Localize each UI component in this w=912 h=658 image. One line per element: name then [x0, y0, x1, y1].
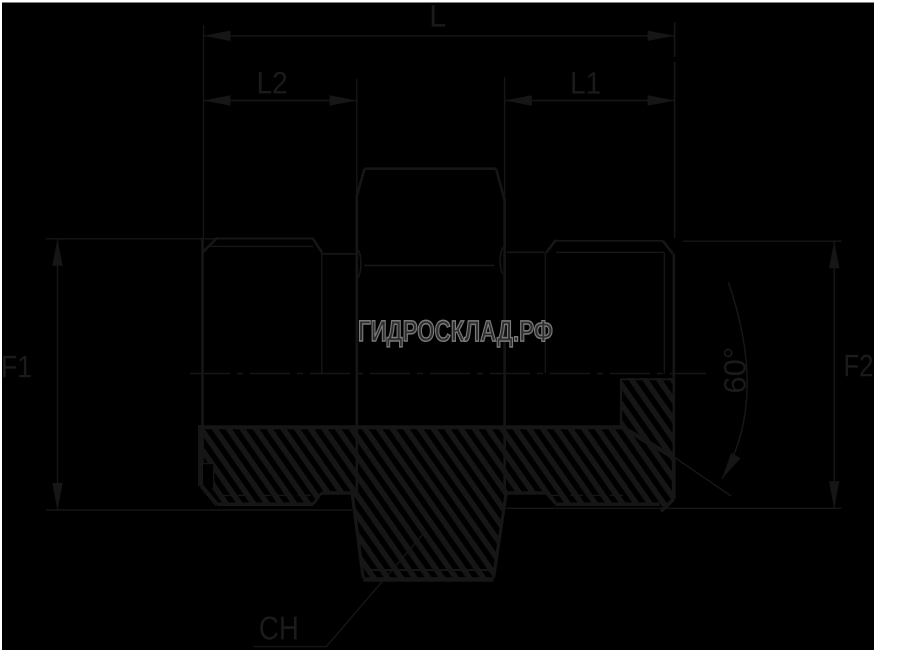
svg-text:F1: F1	[1, 349, 32, 384]
svg-text:ГИДРОСКЛАД.РФ: ГИДРОСКЛАД.РФ	[358, 314, 553, 348]
svg-text:L2: L2	[257, 65, 288, 100]
svg-text:L1: L1	[570, 66, 601, 101]
svg-text:L: L	[429, 0, 446, 33]
svg-text:CH: CH	[259, 609, 299, 646]
svg-text:60°: 60°	[717, 347, 752, 394]
svg-text:F2: F2	[843, 348, 873, 383]
